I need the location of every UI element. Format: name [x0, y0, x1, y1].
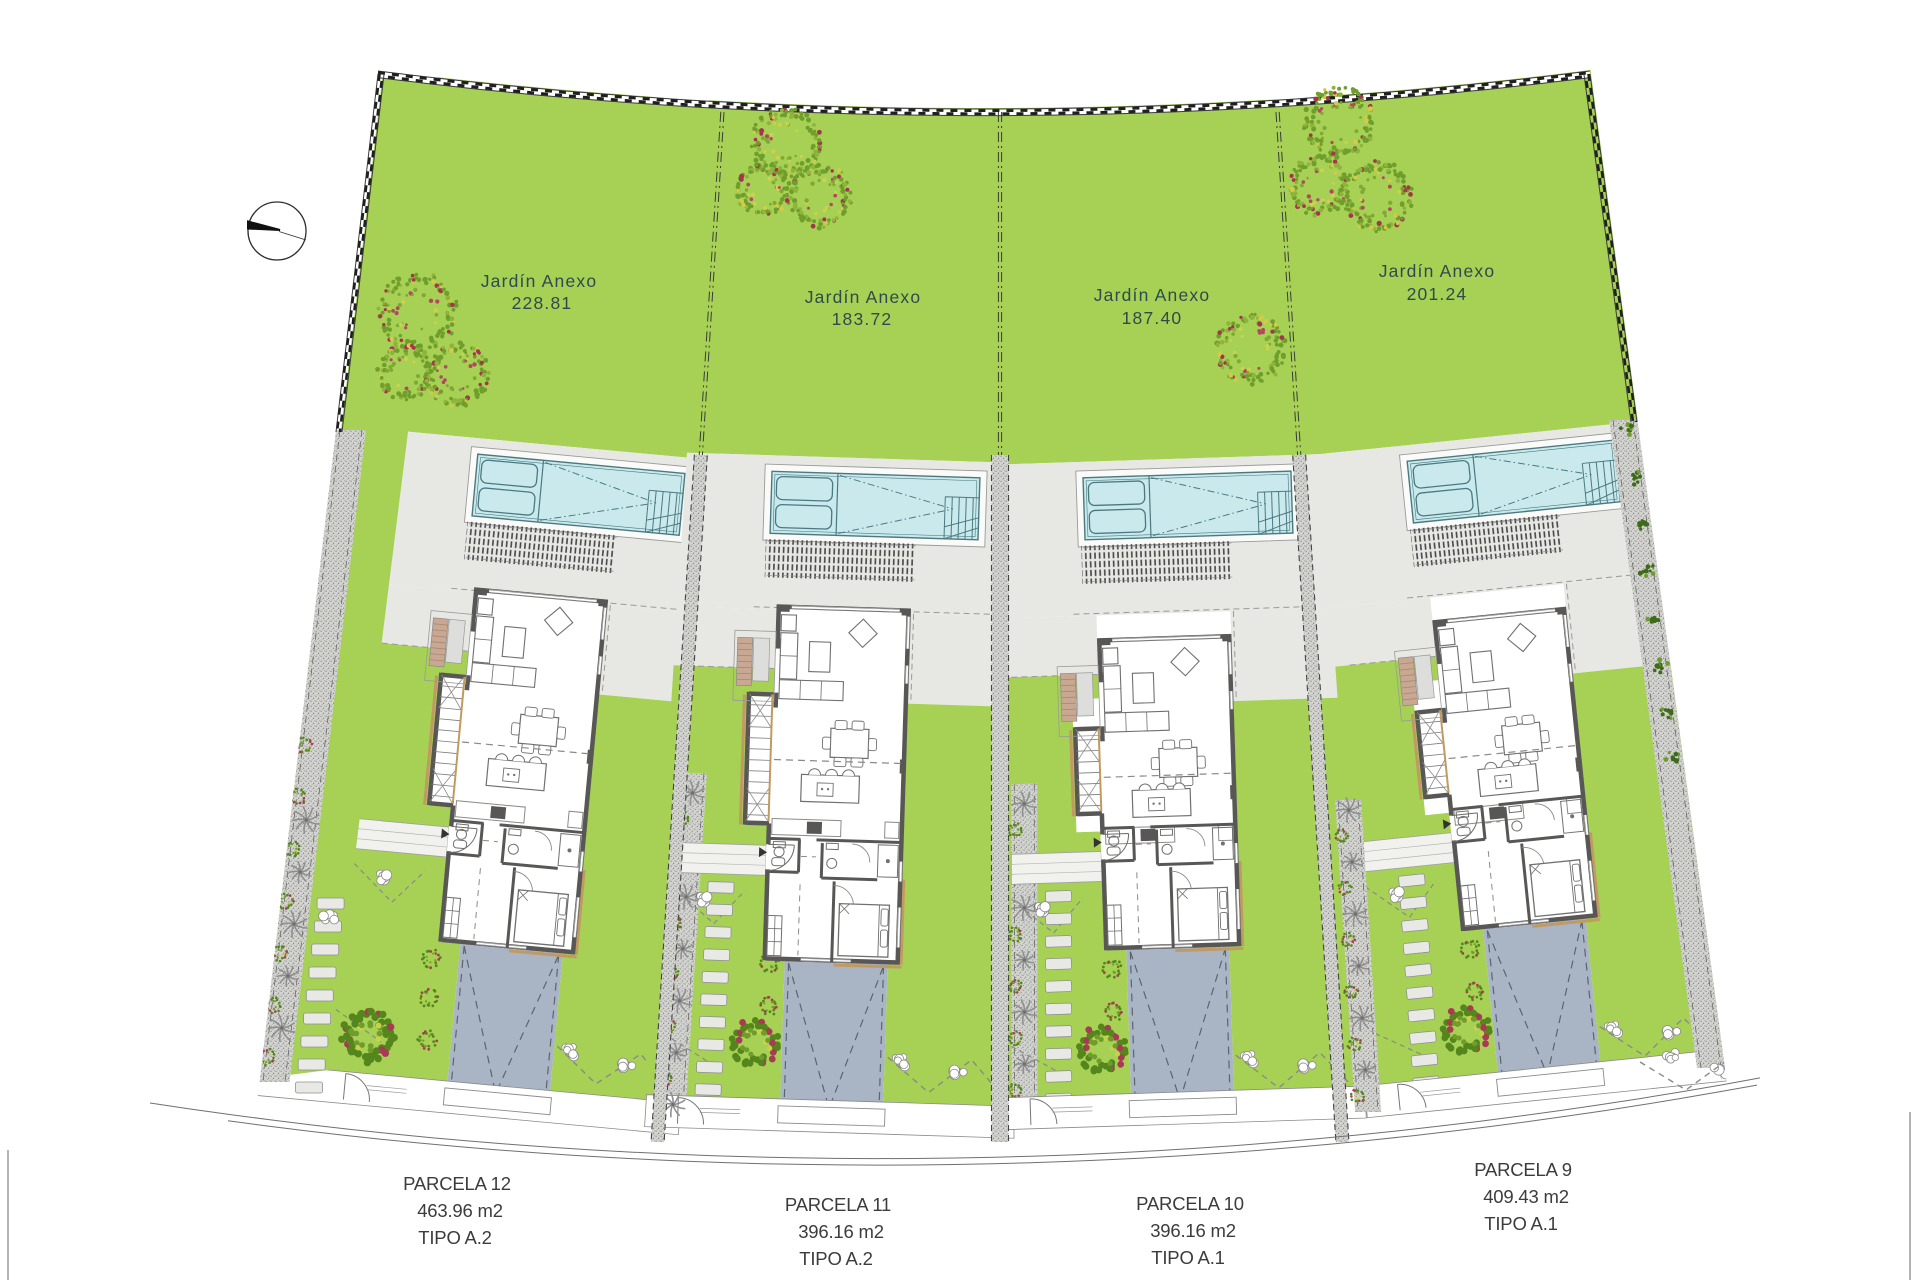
svg-text:Jardín Anexo: Jardín Anexo: [481, 271, 598, 291]
svg-text:183.72: 183.72: [832, 309, 893, 329]
svg-text:228.81: 228.81: [512, 293, 573, 313]
svg-text:PARCELA 12: PARCELA 12: [403, 1173, 511, 1194]
svg-text:TIPO A.2: TIPO A.2: [418, 1227, 491, 1248]
svg-text:463.96 m2: 463.96 m2: [417, 1200, 503, 1221]
svg-text:Jardín Anexo: Jardín Anexo: [1379, 261, 1496, 281]
svg-text:409.43 m2: 409.43 m2: [1483, 1186, 1569, 1207]
svg-text:PARCELA 9: PARCELA 9: [1474, 1159, 1572, 1180]
svg-text:Jardín Anexo: Jardín Anexo: [1094, 285, 1211, 305]
svg-text:TIPO A.2: TIPO A.2: [799, 1248, 872, 1269]
svg-text:Jardín Anexo: Jardín Anexo: [805, 287, 922, 307]
svg-text:TIPO A.1: TIPO A.1: [1151, 1247, 1224, 1268]
svg-text:396.16 m2: 396.16 m2: [1150, 1220, 1236, 1241]
svg-text:TIPO A.1: TIPO A.1: [1484, 1213, 1557, 1234]
svg-text:201.24: 201.24: [1407, 284, 1468, 304]
svg-text:396.16 m2: 396.16 m2: [798, 1221, 884, 1242]
svg-text:187.40: 187.40: [1122, 308, 1183, 328]
svg-text:PARCELA 11: PARCELA 11: [785, 1194, 891, 1215]
svg-text:PARCELA 10: PARCELA 10: [1136, 1193, 1244, 1214]
